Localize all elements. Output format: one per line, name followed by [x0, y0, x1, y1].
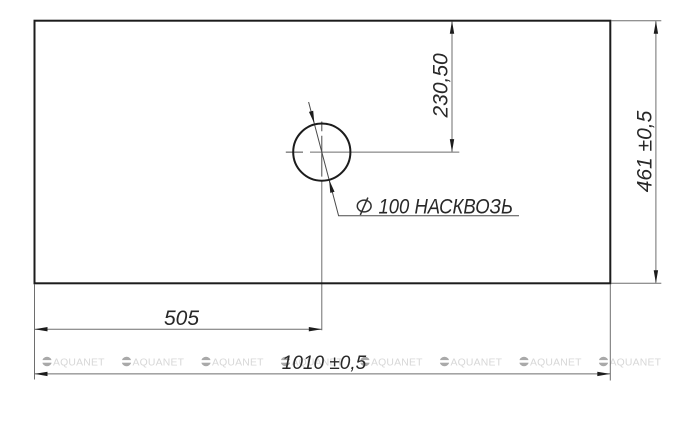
svg-text:100 НАСКВОЗЬ: 100 НАСКВОЗЬ [379, 196, 514, 219]
svg-text:461 ±0,5: 461 ±0,5 [634, 110, 657, 192]
svg-text:1010 ±0,5: 1010 ±0,5 [282, 353, 367, 374]
svg-text:AQUANET: AQUANET [53, 358, 105, 369]
svg-text:230,50: 230,50 [430, 53, 453, 119]
svg-text:505: 505 [164, 307, 199, 330]
